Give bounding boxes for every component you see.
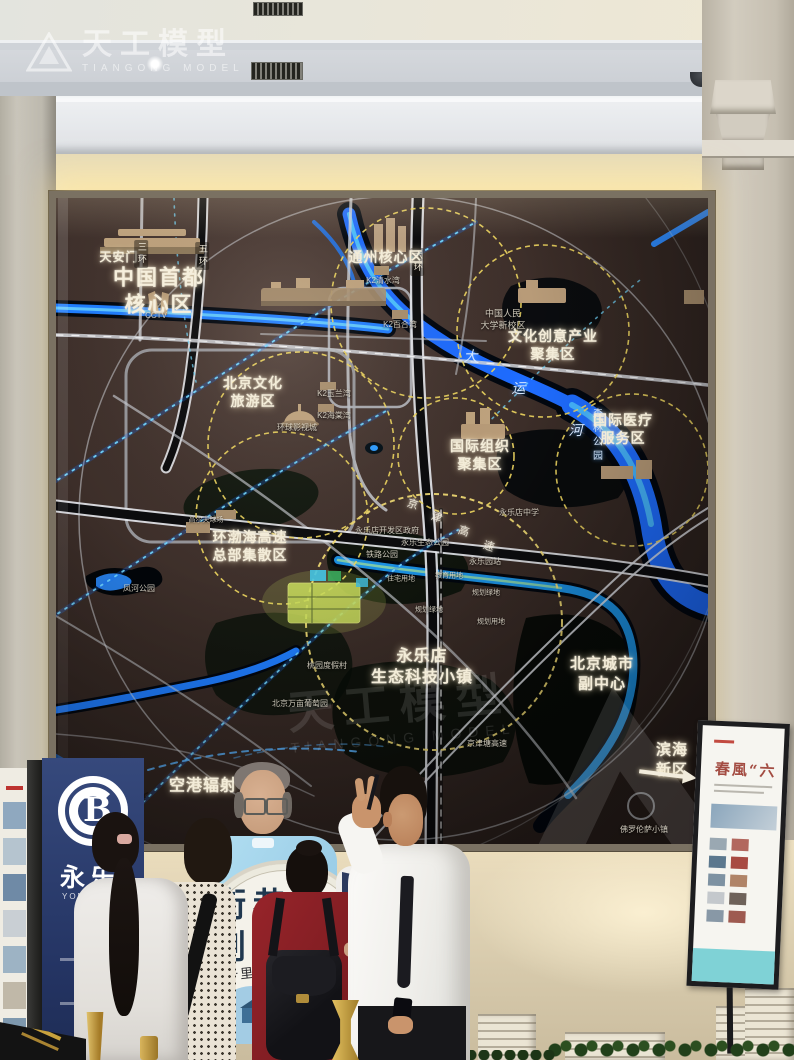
- agent-ear: [383, 812, 392, 827]
- regional-map-display: 天工模型 TIANGONG MODEL 天安门中国首都 核心区三环五环六环通州核…: [56, 198, 708, 844]
- watermark-en: TIANGONG MODEL: [82, 63, 244, 74]
- map-label: 速: [481, 538, 497, 555]
- gold-canister: [140, 1036, 158, 1060]
- map-labels-layer: 天安门中国首都 核心区三环五环六环通州核心区K2清水湾K2百合湾中国人民 大学新…: [56, 198, 708, 844]
- wall-molding: [702, 140, 794, 156]
- glasses-icon: [244, 798, 266, 815]
- map-label: 桃园度假村: [307, 661, 347, 671]
- map-label: 国际医疗 服务区: [593, 411, 653, 447]
- map-label: 规划绿地: [415, 605, 443, 614]
- poster-logo-mark: [714, 740, 734, 744]
- map-label: 北京万亩葡萄园: [272, 699, 328, 709]
- map-label: 规划用地: [477, 617, 505, 626]
- map-label: 京: [405, 496, 421, 513]
- map-label: K2清水湾: [366, 276, 400, 286]
- poster-stand: 春風“六: [683, 720, 794, 1014]
- map-label: 北京文化 旅游区: [223, 374, 283, 410]
- map-label: 京津塘高速: [467, 739, 507, 749]
- standee-collar: [252, 838, 274, 848]
- agent-hand: [388, 1016, 413, 1034]
- map-label: K2百合湾: [383, 320, 417, 330]
- map-label: 凤河公园: [123, 584, 155, 594]
- left-photo-poster: [0, 768, 30, 1060]
- map-label: 三环: [134, 240, 148, 268]
- map-label: 运: [512, 379, 527, 397]
- map-label: K2海棠湾: [317, 411, 351, 421]
- poster-photo: [708, 874, 726, 887]
- visitor-ponytail: [109, 858, 139, 1016]
- map-label: 永乐店开发区政府: [355, 526, 419, 536]
- poster-thumbnail: [3, 982, 26, 1009]
- poster-photo: [728, 910, 746, 923]
- poster-title: 春風“六: [714, 758, 776, 782]
- map-label: 规划绿地: [472, 588, 500, 597]
- map-label: 永乐店 生态科技小镇: [371, 647, 473, 689]
- showroom-photo: 天工模型 TIANGONG MODEL: [0, 0, 794, 1060]
- map-label: 永乐店中学: [499, 508, 539, 518]
- standee-hair-side: [234, 792, 244, 818]
- map-label: 佛罗伦萨小镇: [620, 825, 668, 835]
- map-label: 大: [464, 347, 479, 365]
- poster-photo: [731, 857, 749, 870]
- air-vent-icon: [251, 62, 303, 80]
- poster-photo: [729, 892, 747, 905]
- poster-photo: [709, 838, 727, 851]
- backpack-flap: [272, 956, 336, 996]
- air-vent-icon: [253, 2, 303, 16]
- left-poster-frame: [27, 760, 43, 1060]
- poster-photo: [730, 875, 748, 888]
- map-label: 环球影视城: [277, 423, 317, 433]
- map-label: 教育用地: [435, 571, 463, 580]
- tiangong-logo-icon: [26, 32, 72, 72]
- map-label: 通州核心区: [349, 248, 424, 266]
- poster-photo: [709, 856, 727, 869]
- poster-photo: [706, 910, 724, 923]
- map-label: 五环: [195, 242, 209, 270]
- map-label: 永乐生态公园: [401, 538, 449, 548]
- visitor-red-jacket-bun: [296, 840, 322, 856]
- map-label: 北京城市 副中心: [570, 655, 634, 694]
- agent-trousers: [358, 1006, 466, 1060]
- poster-thumbnail: [3, 910, 26, 937]
- map-label: CCTV: [145, 311, 167, 321]
- poster-text-bar: [714, 790, 764, 794]
- poster-thumbnail: [3, 874, 26, 901]
- cornice-lower: [0, 96, 794, 154]
- map-label: 住宅用地: [387, 574, 415, 583]
- map-label: 环渤海高速 总部集散区: [213, 528, 288, 564]
- pilaster-capital: [710, 80, 776, 114]
- glasses-icon: [266, 798, 288, 815]
- poster-footer-band: [692, 948, 775, 985]
- map-label: 高: [456, 523, 472, 540]
- poster-text-bar: [714, 784, 772, 789]
- poster-photo: [707, 892, 725, 905]
- watermark-top: 天工模型 TIANGONG MODEL: [26, 30, 244, 74]
- visitor-white-top-hair: [92, 812, 139, 872]
- map-label: 高尔夫球场: [189, 515, 224, 524]
- poster-logo-mark: [6, 786, 23, 790]
- visitor-patterned-shirt-head: [184, 818, 232, 884]
- agent-face: [388, 794, 423, 846]
- map-label: 河: [569, 421, 584, 439]
- map-label: 空港辐射: [169, 777, 237, 798]
- poster-photo: [731, 839, 749, 852]
- map-label: 文化创意产业 聚集区: [508, 327, 598, 363]
- watermark-cn: 天工模型: [82, 30, 244, 60]
- backpack-clasp: [296, 994, 309, 1003]
- model-trees: [548, 1038, 794, 1060]
- poster-hero-image: [710, 804, 777, 831]
- map-label: K2玉兰湾: [317, 389, 351, 399]
- map-label: 国际组织 聚集区: [450, 437, 510, 473]
- map-label: 天安门: [99, 250, 138, 266]
- poster-thumbnail: [3, 838, 26, 865]
- map-label: 永乐园站: [469, 557, 501, 567]
- map-label: 铁路公园: [366, 550, 398, 560]
- hair-clip: [117, 834, 132, 844]
- map-label: 津: [429, 509, 445, 526]
- poster-thumbnail: [3, 802, 26, 829]
- poster-thumbnail: [3, 946, 26, 973]
